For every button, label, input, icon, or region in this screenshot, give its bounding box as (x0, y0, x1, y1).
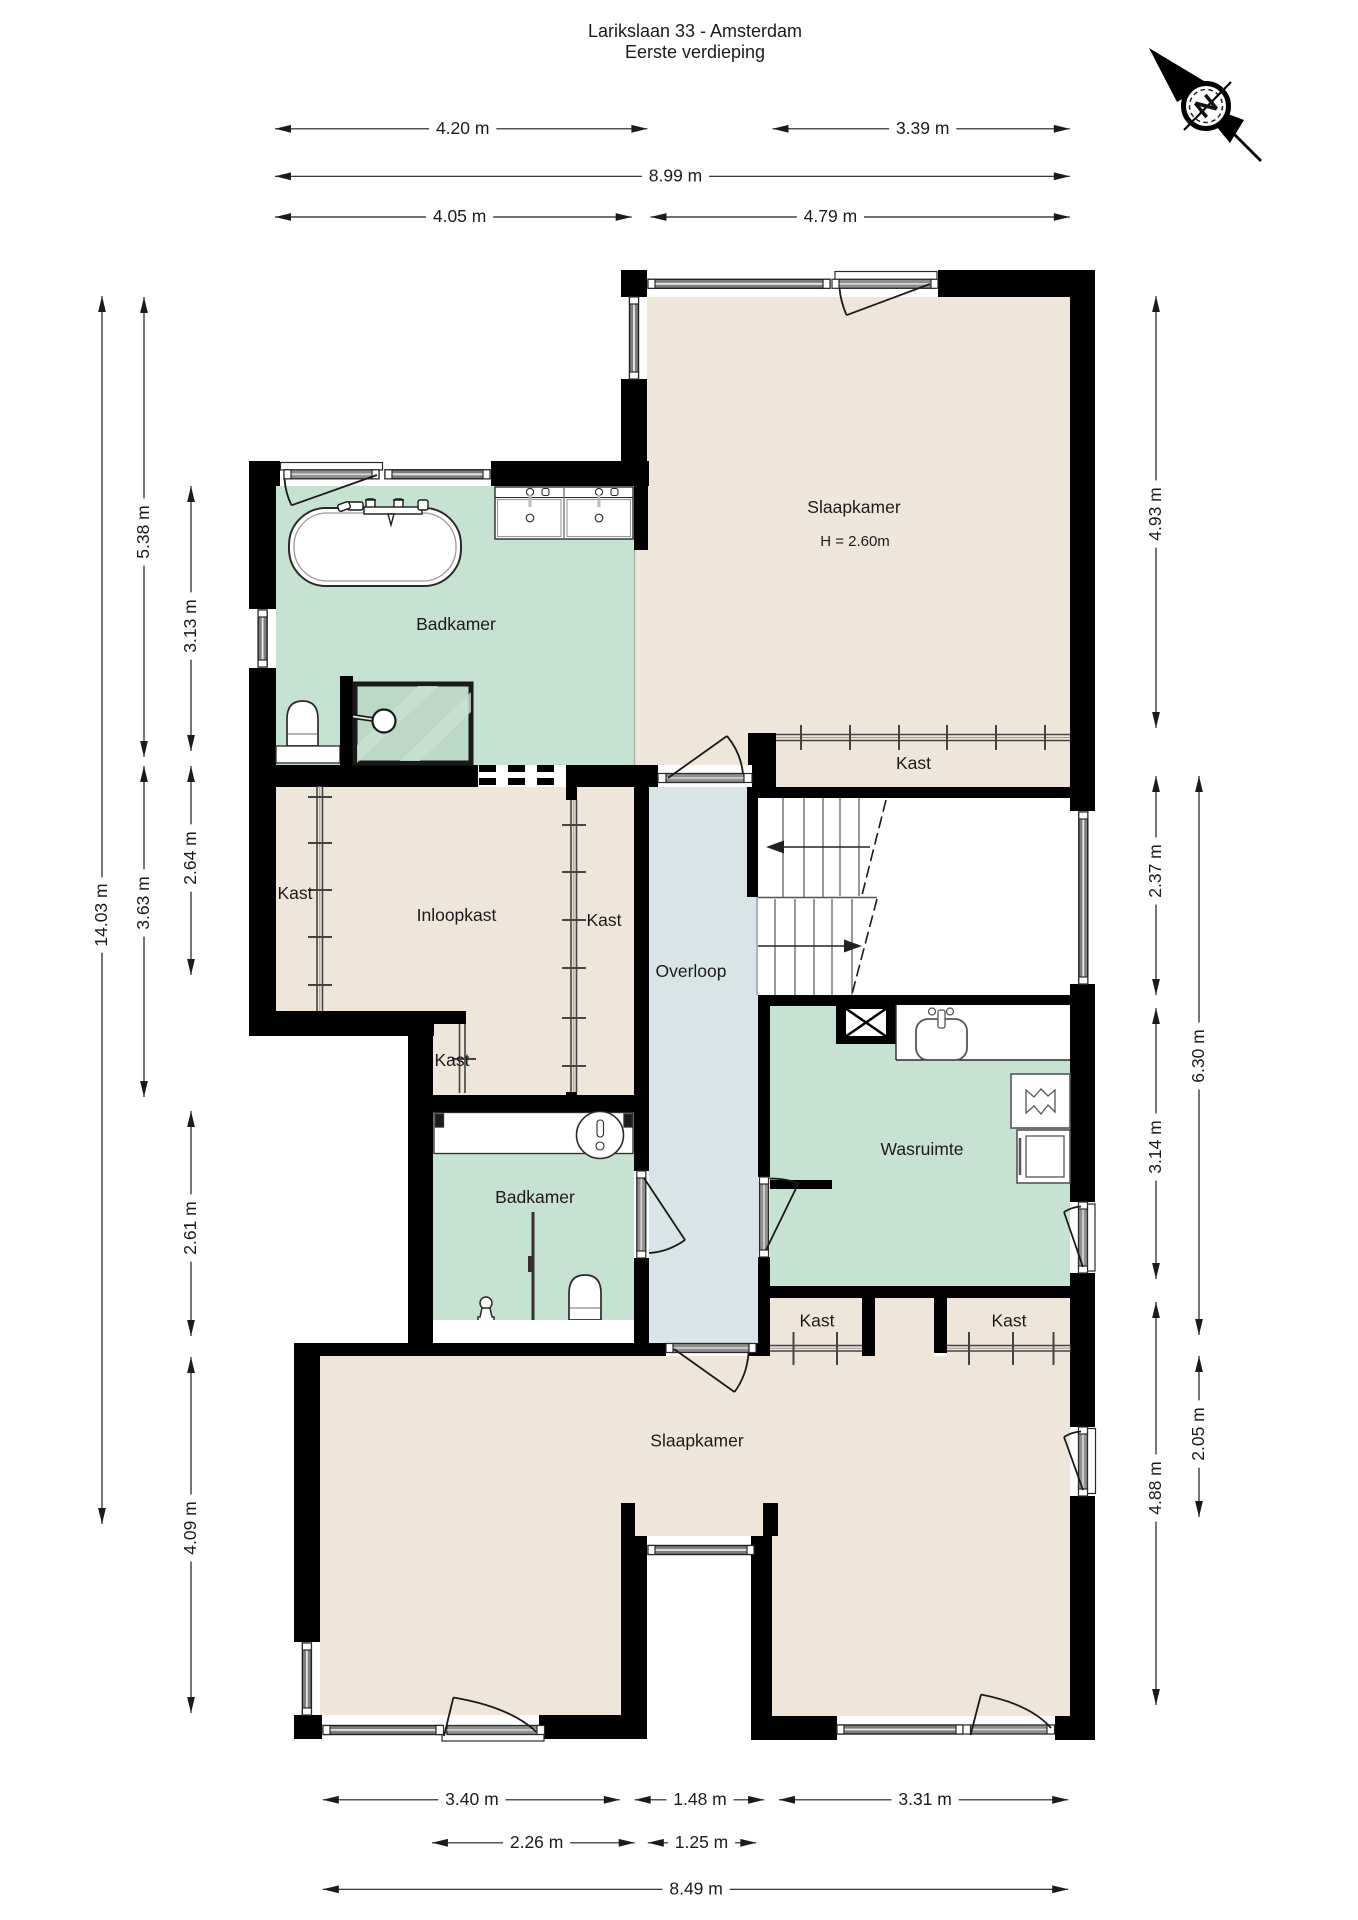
svg-text:Kast: Kast (434, 1050, 469, 1070)
svg-text:3.63 m: 3.63 m (133, 876, 153, 930)
svg-text:Slaapkamer: Slaapkamer (807, 497, 901, 517)
svg-text:Kast: Kast (586, 910, 621, 930)
svg-text:1.48 m: 1.48 m (673, 1789, 727, 1809)
svg-text:Larikslaan 33 - Amsterdam: Larikslaan 33 - Amsterdam (588, 21, 802, 41)
svg-text:Slaapkamer: Slaapkamer (650, 1431, 744, 1451)
svg-text:4.88 m: 4.88 m (1145, 1461, 1165, 1515)
svg-text:3.39 m: 3.39 m (896, 118, 950, 138)
svg-text:6.30 m: 6.30 m (1188, 1029, 1208, 1083)
svg-text:Badkamer: Badkamer (416, 614, 496, 634)
svg-text:4.93 m: 4.93 m (1145, 487, 1165, 541)
svg-text:3.14 m: 3.14 m (1145, 1120, 1165, 1174)
svg-text:3.31 m: 3.31 m (898, 1789, 952, 1809)
svg-text:Kast: Kast (991, 1311, 1026, 1331)
svg-text:Kast: Kast (277, 883, 312, 903)
svg-text:4.79 m: 4.79 m (804, 206, 858, 226)
svg-text:5.38 m: 5.38 m (133, 505, 153, 559)
svg-text:3.40 m: 3.40 m (445, 1789, 499, 1809)
svg-text:Eerste verdieping: Eerste verdieping (625, 42, 765, 62)
svg-text:H = 2.60m: H = 2.60m (820, 533, 890, 550)
svg-text:4.20 m: 4.20 m (436, 118, 490, 138)
svg-text:Overloop: Overloop (655, 961, 726, 981)
svg-text:4.05 m: 4.05 m (433, 206, 487, 226)
svg-text:8.99 m: 8.99 m (649, 166, 703, 186)
svg-text:2.61 m: 2.61 m (180, 1201, 200, 1255)
svg-text:14.03 m: 14.03 m (91, 883, 111, 946)
svg-text:Wasruimte: Wasruimte (881, 1139, 964, 1159)
svg-text:2.64 m: 2.64 m (180, 831, 200, 885)
svg-text:8.49 m: 8.49 m (669, 1879, 723, 1899)
svg-text:Inloopkast: Inloopkast (417, 905, 497, 925)
svg-text:2.26 m: 2.26 m (510, 1832, 564, 1852)
svg-text:Kast: Kast (896, 753, 931, 773)
svg-text:1.25 m: 1.25 m (675, 1832, 729, 1852)
svg-text:Badkamer: Badkamer (495, 1187, 575, 1207)
svg-text:2.37 m: 2.37 m (1145, 844, 1165, 898)
svg-text:3.13 m: 3.13 m (180, 599, 200, 653)
svg-text:4.09 m: 4.09 m (180, 1501, 200, 1555)
svg-text:2.05 m: 2.05 m (1188, 1407, 1208, 1461)
svg-text:Kast: Kast (799, 1311, 834, 1331)
